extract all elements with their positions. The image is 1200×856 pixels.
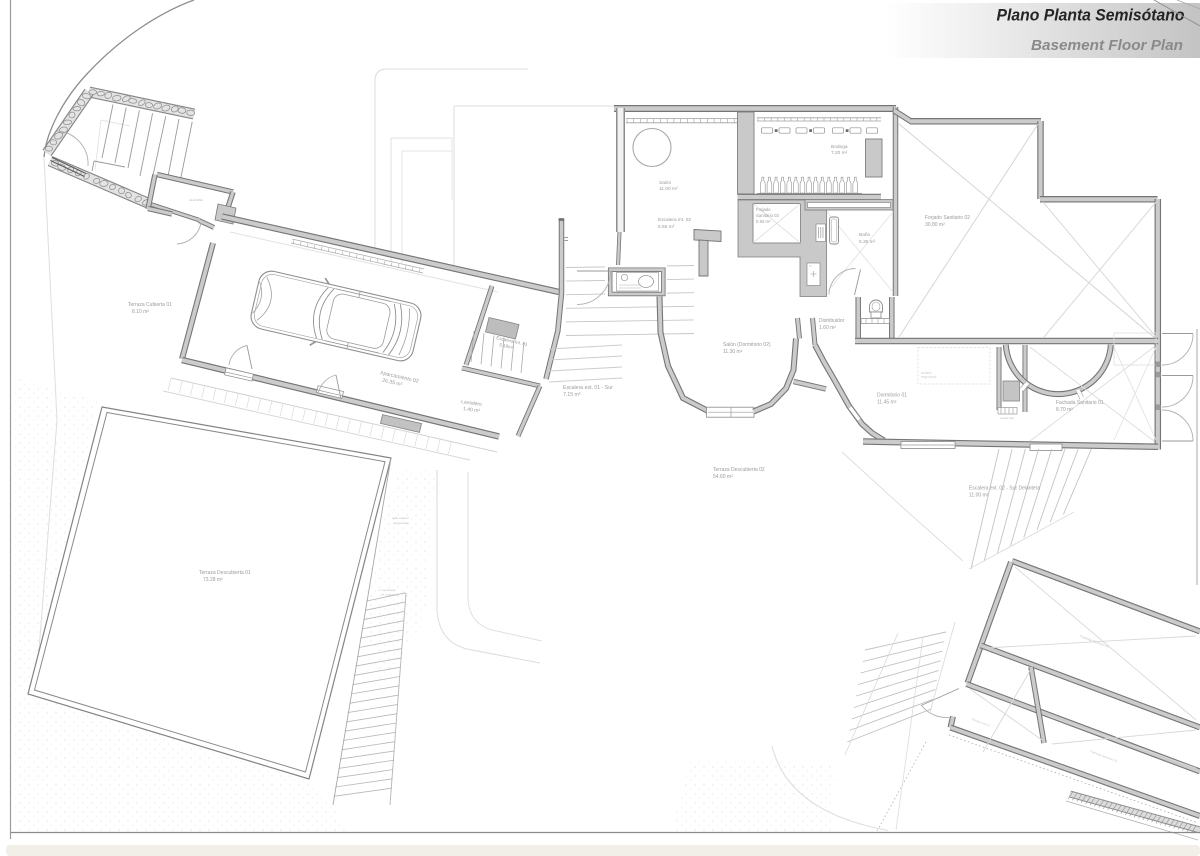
svg-text:Escalera ext. 02 - Sur Delante: Escalera ext. 02 - Sur Delantera [969, 486, 1040, 492]
svg-text:Escalera int 03: Escalera int 03 [972, 717, 991, 728]
svg-text:5.65 m²: 5.65 m² [658, 224, 675, 230]
svg-text:Baño: Baño [859, 232, 871, 238]
svg-text:11.00 m²: 11.00 m² [659, 186, 678, 192]
svg-text:1.40 m²: 1.40 m² [463, 406, 481, 414]
svg-text:11.30 m²: 11.30 m² [723, 349, 743, 355]
svg-text:14 m approx: 14 m approx [381, 593, 398, 597]
svg-text:Dormitorio 01: Dormitorio 01 [877, 393, 907, 399]
svg-text:calle exterior: calle exterior [392, 516, 409, 520]
svg-text:1.60 m²: 1.60 m² [819, 325, 836, 331]
svg-text:Sanitario 03: Sanitario 03 [756, 213, 780, 218]
svg-text:adoquinada: adoquinada [393, 521, 409, 525]
svg-text:Plano Planta Semisótano: Plano Planta Semisótano [997, 7, 1185, 25]
svg-text:Distribuidor: Distribuidor [819, 318, 845, 324]
svg-text:7.15 m²: 7.15 m² [563, 392, 581, 398]
svg-text:Fachada Sanitario 04: Fachada Sanitario 04 [1090, 749, 1118, 763]
svg-text:empotrado: empotrado [921, 375, 936, 379]
svg-text:8.70 m²: 8.70 m² [1056, 407, 1073, 413]
svg-text:5.35 m²: 5.35 m² [859, 239, 876, 245]
svg-text:30.80 m²: 30.80 m² [925, 222, 945, 228]
svg-text:+/- pendiente: +/- pendiente [378, 588, 396, 592]
svg-text:Forjado: Forjado [756, 207, 771, 212]
svg-text:Basement Floor Plan: Basement Floor Plan [1031, 37, 1183, 54]
svg-text:Salón: Salón [659, 180, 672, 186]
svg-text:73.28 m²: 73.28 m² [203, 577, 223, 583]
svg-text:7.20 m²: 7.20 m² [831, 150, 848, 156]
svg-text:ALACENA: ALACENA [189, 198, 203, 202]
svg-text:Terraza Descubierta 01: Terraza Descubierta 01 [199, 570, 251, 576]
svg-text:Forjado Sanitario 02: Forjado Sanitario 02 [925, 215, 970, 221]
svg-text:Terraza Descubierta 02: Terraza Descubierta 02 [713, 467, 765, 473]
svg-text:mueble bajo: mueble bajo [1000, 416, 1015, 420]
svg-text:11.00 m²: 11.00 m² [969, 493, 989, 499]
svg-text:Salón (Dormitorio 02): Salón (Dormitorio 02) [723, 342, 771, 348]
svg-text:11.45 m²: 11.45 m² [877, 400, 897, 406]
svg-text:Escalera ext. 01 - Sur: Escalera ext. 01 - Sur [563, 385, 613, 391]
svg-text:Escalera int. 02: Escalera int. 02 [658, 217, 691, 223]
svg-text:54.60 m²: 54.60 m² [713, 474, 733, 480]
svg-text:8.10 m²: 8.10 m² [132, 309, 149, 315]
svg-text:Fachada Sanitario 01: Fachada Sanitario 01 [1056, 400, 1104, 406]
svg-text:Terraza Cubierta 01: Terraza Cubierta 01 [128, 302, 172, 308]
svg-text:Bodega: Bodega [831, 144, 848, 150]
svg-text:0.90 m²: 0.90 m² [756, 219, 771, 224]
